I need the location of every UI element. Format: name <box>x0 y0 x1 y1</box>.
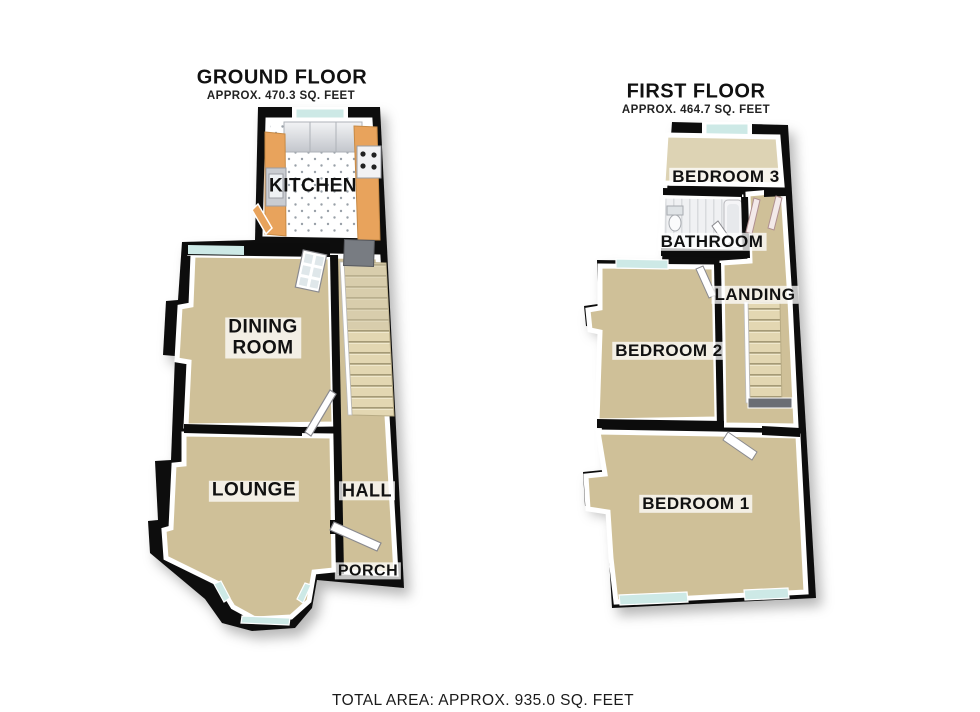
label-kitchen: KITCHEN <box>266 177 360 198</box>
room-bedroom1-floor <box>586 432 806 602</box>
total-area-text: TOTAL AREA: APPROX. 935.0 SQ. FEET <box>332 692 634 710</box>
bay-window-centre <box>241 616 290 625</box>
kitchen-wall-cabinets <box>284 122 362 152</box>
kitchen-hob <box>357 146 381 178</box>
bedroom2-window <box>616 259 668 269</box>
label-dining-room: DINING ROOM <box>225 317 301 358</box>
ground-floor-area: APPROX. 470.3 SQ. FEET <box>207 90 355 102</box>
first-floor-plan <box>583 122 816 608</box>
ground-floor-title: GROUND FLOOR <box>197 67 367 90</box>
floorplan-page: GROUND FLOOR APPROX. 470.3 SQ. FEET FIRS… <box>0 0 980 712</box>
toilet-cistern <box>667 206 683 215</box>
first-floor-area: APPROX. 464.7 SQ. FEET <box>622 104 770 116</box>
label-hall: HALL <box>339 481 395 500</box>
wall-bedroom3-corridor <box>764 188 786 197</box>
first-floor-title: FIRST FLOOR <box>627 81 766 104</box>
hob-burner <box>371 164 376 169</box>
toilet-bowl <box>669 215 681 231</box>
label-lounge: LOUNGE <box>209 481 299 502</box>
dining-window-glass <box>188 245 244 255</box>
label-landing: LANDING <box>712 286 799 304</box>
label-bedroom3: BEDROOM 3 <box>669 168 782 186</box>
bedroom1-window-right <box>744 588 789 600</box>
staircase-first <box>748 302 782 404</box>
hob-burner <box>360 151 365 156</box>
hob-burner <box>360 163 365 168</box>
hob-burner <box>371 152 376 157</box>
floorplan-drawing <box>0 0 980 712</box>
bedroom1-window-left <box>619 592 688 605</box>
label-bedroom1: BEDROOM 1 <box>639 495 752 513</box>
label-bedroom2: BEDROOM 2 <box>612 342 725 360</box>
stair-rail <box>748 398 792 408</box>
stairs-top-door <box>344 239 375 266</box>
label-bathroom: BATHROOM <box>658 233 767 251</box>
label-porch: PORCH <box>335 562 401 579</box>
stairs-ceiling-cut <box>344 262 390 330</box>
